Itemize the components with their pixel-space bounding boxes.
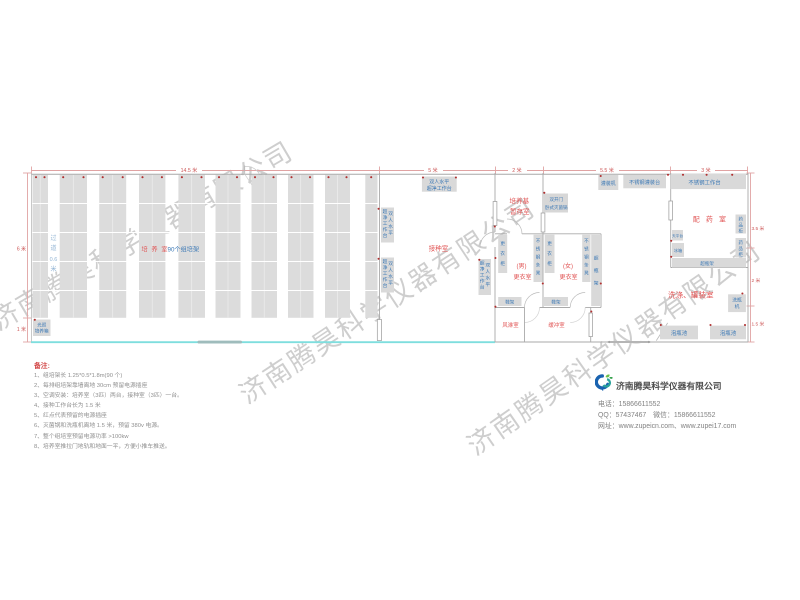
svg-text:不锈钢工作台: 不锈钢工作台	[688, 178, 720, 186]
svg-text:14.5 米: 14.5 米	[181, 166, 199, 174]
svg-text:药品柜: 药品柜	[738, 239, 743, 258]
svg-text:更衣柜: 更衣柜	[500, 241, 505, 267]
svg-text:超瓶架: 超瓶架	[594, 255, 599, 287]
svg-text:光照: 光照	[37, 322, 47, 329]
svg-text:配 药 室: 配 药 室	[693, 214, 728, 223]
svg-text:超净工作台: 超净工作台	[383, 258, 388, 289]
svg-text:米: 米	[50, 265, 56, 273]
svg-text:超净工作台: 超净工作台	[383, 208, 388, 239]
svg-text:卧式灭菌锅: 卧式灭菌锅	[545, 204, 568, 211]
svg-text:培 养 室: 培 养 室	[142, 246, 169, 254]
svg-text:培养基: 培养基	[510, 196, 530, 205]
svg-text:超净工作台: 超净工作台	[427, 185, 452, 192]
svg-text:1 米: 1 米	[17, 326, 26, 333]
svg-text:(男): (男)	[517, 263, 527, 270]
svg-text:更衣柜: 更衣柜	[547, 241, 552, 267]
svg-text:超净工作台: 超净工作台	[480, 260, 485, 291]
svg-text:缓冲室: 缓冲室	[548, 321, 565, 329]
svg-text:2 米: 2 米	[752, 277, 761, 284]
svg-text:机: 机	[735, 303, 740, 310]
svg-text:泡瓶池: 泡瓶池	[671, 329, 688, 337]
svg-text:更衣室: 更衣室	[513, 273, 531, 281]
svg-text:更衣室: 更衣室	[559, 273, 577, 281]
svg-text:过: 过	[50, 234, 56, 242]
svg-text:90个组培架: 90个组培架	[168, 246, 200, 254]
svg-text:双人水平: 双人水平	[429, 178, 449, 185]
svg-text:1.5 米: 1.5 米	[752, 321, 765, 328]
svg-text:5 米: 5 米	[428, 166, 438, 174]
svg-text:0.6: 0.6	[50, 257, 58, 263]
svg-text:培养箱: 培养箱	[35, 328, 49, 335]
svg-text:3 米: 3 米	[701, 166, 711, 174]
svg-text:鞋架: 鞋架	[505, 299, 515, 306]
svg-text:不锈钢灌装台: 不锈钢灌装台	[629, 178, 660, 186]
svg-text:鞋架: 鞋架	[551, 299, 561, 306]
svg-text:3.5 米: 3.5 米	[752, 225, 765, 232]
svg-text:暂存室: 暂存室	[510, 206, 530, 215]
svg-text:冰箱: 冰箱	[674, 247, 682, 254]
svg-text:5.5 米: 5.5 米	[600, 166, 615, 174]
svg-text:道: 道	[50, 244, 56, 252]
svg-text:超瓶架: 超瓶架	[700, 260, 714, 267]
svg-text:泡瓶池: 泡瓶池	[720, 329, 737, 337]
svg-text:风淋室: 风淋室	[502, 321, 519, 329]
svg-text:洗瓶: 洗瓶	[732, 297, 742, 304]
svg-text:洗涤、罐装室: 洗涤、罐装室	[668, 289, 714, 299]
svg-text:天平台: 天平台	[672, 233, 683, 238]
svg-text:(女): (女)	[563, 262, 573, 270]
svg-text:药品柜: 药品柜	[738, 215, 743, 234]
svg-text:双开门: 双开门	[550, 196, 564, 203]
svg-text:6 米: 6 米	[17, 246, 26, 253]
svg-text:灌装机: 灌装机	[601, 180, 616, 187]
svg-text:2 米: 2 米	[512, 166, 522, 174]
svg-text:接种室: 接种室	[429, 243, 449, 252]
